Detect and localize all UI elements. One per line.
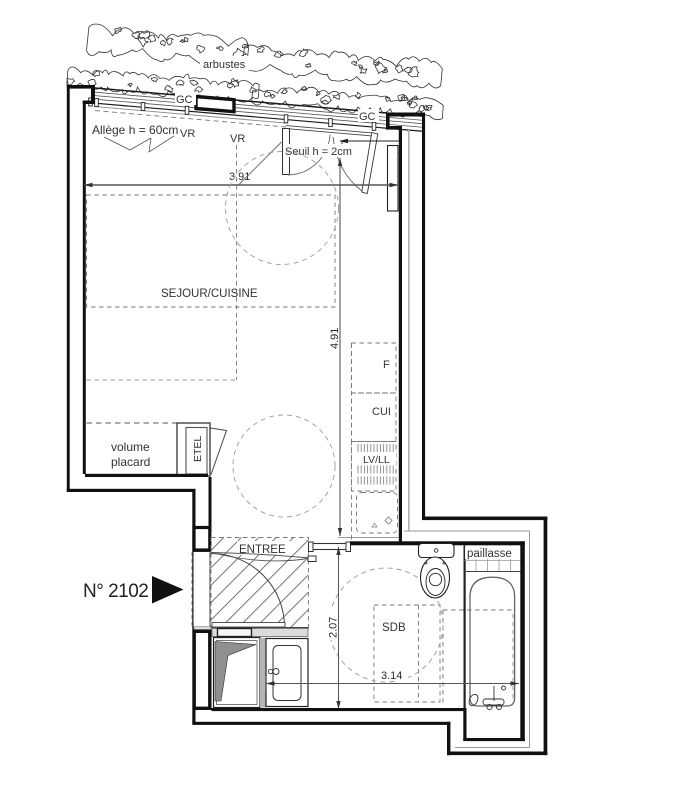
- svg-text:volume: volume: [111, 440, 150, 454]
- svg-text:LV/LL: LV/LL: [363, 454, 390, 466]
- svg-text:Allège h = 60cm: Allège h = 60cm: [92, 123, 178, 137]
- svg-text:ETEL: ETEL: [192, 436, 204, 462]
- svg-text:3.91: 3.91: [229, 171, 250, 183]
- svg-text:arbustes: arbustes: [203, 59, 246, 71]
- svg-text:GC: GC: [359, 111, 376, 123]
- svg-text:SDB: SDB: [382, 622, 406, 634]
- svg-text:F: F: [383, 359, 390, 371]
- svg-text:VR: VR: [180, 128, 195, 140]
- svg-text:3.14: 3.14: [381, 670, 402, 682]
- svg-text:GC: GC: [176, 94, 193, 106]
- svg-text:N° 2102: N° 2102: [83, 581, 148, 602]
- svg-text:Seuil h = 2cm: Seuil h = 2cm: [285, 146, 352, 158]
- svg-text:placard: placard: [111, 455, 150, 469]
- svg-text:2.07: 2.07: [328, 617, 340, 638]
- svg-text:CUI: CUI: [372, 406, 391, 418]
- svg-text:4.91: 4.91: [329, 328, 341, 349]
- svg-text:VR: VR: [230, 133, 245, 145]
- svg-text:paillasse: paillasse: [467, 548, 512, 560]
- svg-text:SEJOUR/CUISINE: SEJOUR/CUISINE: [161, 288, 258, 300]
